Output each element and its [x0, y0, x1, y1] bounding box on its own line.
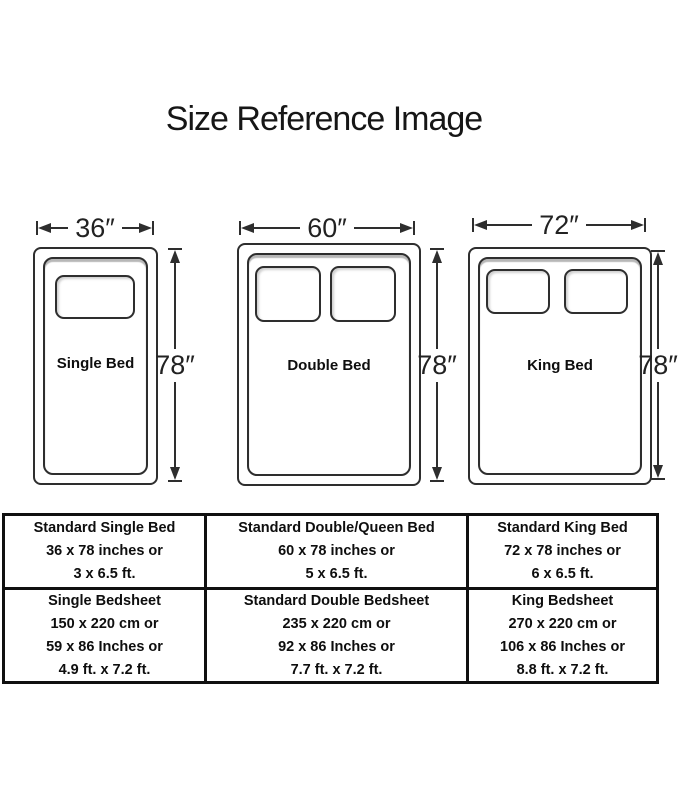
single-bed-outline: Single Bed [33, 247, 158, 485]
arrow-right-icon [631, 220, 644, 230]
arrow-right-icon [400, 223, 413, 233]
dimension-line [254, 227, 300, 229]
table-line: 4.9 ft. x 7.2 ft. [5, 659, 204, 682]
table-line: 6 x 6.5 ft. [469, 563, 656, 586]
table-line: 60 x 78 inches or [207, 540, 466, 563]
table-line: 8.8 ft. x 7.2 ft. [469, 659, 656, 682]
dimension-line [174, 382, 176, 468]
table-line: 270 x 220 cm or [469, 613, 656, 636]
pillow-icon [255, 266, 321, 322]
pillow-icon [564, 269, 628, 314]
table-line: Standard King Bed [469, 517, 656, 540]
table-line: 3 x 6.5 ft. [5, 563, 204, 586]
double-bed-width-label: 60″ [300, 215, 354, 242]
table-line: Standard Double Bedsheet [207, 590, 466, 613]
table-cell-standard-single-bed: Standard Single Bed 36 x 78 inches or 3 … [5, 516, 204, 587]
dimension-end-bar [430, 480, 444, 482]
table-cell-standard-double-queen-bed: Standard Double/Queen Bed 60 x 78 inches… [207, 516, 466, 587]
king-bed-width-label: 72″ [532, 212, 586, 239]
dimension-end-bar [152, 221, 154, 235]
arrow-down-icon [432, 467, 442, 480]
arrow-up-icon [170, 250, 180, 263]
table-line: 106 x 86 Inches or [469, 636, 656, 659]
table-cell-single-bedsheet: Single Bedsheet 150 x 220 cm or 59 x 86 … [5, 590, 204, 681]
table-line: 235 x 220 cm or [207, 613, 466, 636]
dimension-end-bar [168, 480, 182, 482]
double-bed-height-arrow: 78″ [413, 248, 461, 482]
arrow-left-icon [38, 223, 51, 233]
pillow-icon [486, 269, 550, 314]
table-line: Standard Double/Queen Bed [207, 517, 466, 540]
table-line: 5 x 6.5 ft. [207, 563, 466, 586]
arrow-up-icon [653, 252, 663, 265]
arrow-right-icon [139, 223, 152, 233]
single-bed-height-arrow: 78″ [151, 248, 199, 482]
single-bed-width-label: 36″ [68, 215, 122, 242]
table-line: 7.7 ft. x 7.2 ft. [207, 659, 466, 682]
table-cell-standard-king-bed: Standard King Bed 72 x 78 inches or 6 x … [469, 516, 656, 587]
king-bed-height-arrow: 78″ [634, 250, 682, 480]
table-cell-king-bedsheet: King Bedsheet 270 x 220 cm or 106 x 86 I… [469, 590, 656, 681]
arrow-left-icon [474, 220, 487, 230]
double-bed-height-label: 78″ [417, 349, 457, 382]
single-bed-height-label: 78″ [155, 349, 195, 382]
table-cell-standard-double-bedsheet: Standard Double Bedsheet 235 x 220 cm or… [207, 590, 466, 681]
page-title: Size Reference Image [0, 100, 648, 139]
single-bed-width-arrow: 36″ [36, 213, 154, 243]
table-line: 150 x 220 cm or [5, 613, 204, 636]
double-bed-outline: Double Bed [237, 243, 421, 486]
dimension-line [657, 265, 659, 349]
dimension-line [122, 227, 139, 229]
size-reference-page: Size Reference Image 36″ Single Bed 78″ [0, 0, 683, 800]
dimension-line [354, 227, 400, 229]
table-line: Single Bedsheet [5, 590, 204, 613]
arrow-down-icon [170, 467, 180, 480]
double-bed-label: Double Bed [239, 357, 419, 374]
table-line: 59 x 86 Inches or [5, 636, 204, 659]
king-bed-outline: King Bed [468, 247, 652, 485]
dimension-line [174, 263, 176, 349]
size-table: Standard Single Bed 36 x 78 inches or 3 … [2, 513, 659, 684]
king-bed-height-label: 78″ [638, 349, 678, 382]
king-bed-width-arrow: 72″ [472, 210, 646, 240]
table-line: 92 x 86 Inches or [207, 636, 466, 659]
double-bed-width-arrow: 60″ [239, 213, 415, 243]
arrow-up-icon [432, 250, 442, 263]
dimension-line [51, 227, 68, 229]
dimension-line [436, 382, 438, 468]
table-line: 36 x 78 inches or [5, 540, 204, 563]
dimension-line [657, 382, 659, 466]
table-line: King Bedsheet [469, 590, 656, 613]
pillow-icon [55, 275, 135, 319]
dimension-end-bar [413, 221, 415, 235]
king-bed-label: King Bed [470, 357, 650, 374]
table-line: Standard Single Bed [5, 517, 204, 540]
single-bed-label: Single Bed [35, 355, 156, 372]
dimension-line [436, 263, 438, 349]
arrow-down-icon [653, 465, 663, 478]
dimension-end-bar [651, 478, 665, 480]
dimension-end-bar [644, 218, 646, 232]
pillow-icon [330, 266, 396, 322]
dimension-line [487, 224, 532, 226]
table-line: 72 x 78 inches or [469, 540, 656, 563]
dimension-line [586, 224, 631, 226]
arrow-left-icon [241, 223, 254, 233]
